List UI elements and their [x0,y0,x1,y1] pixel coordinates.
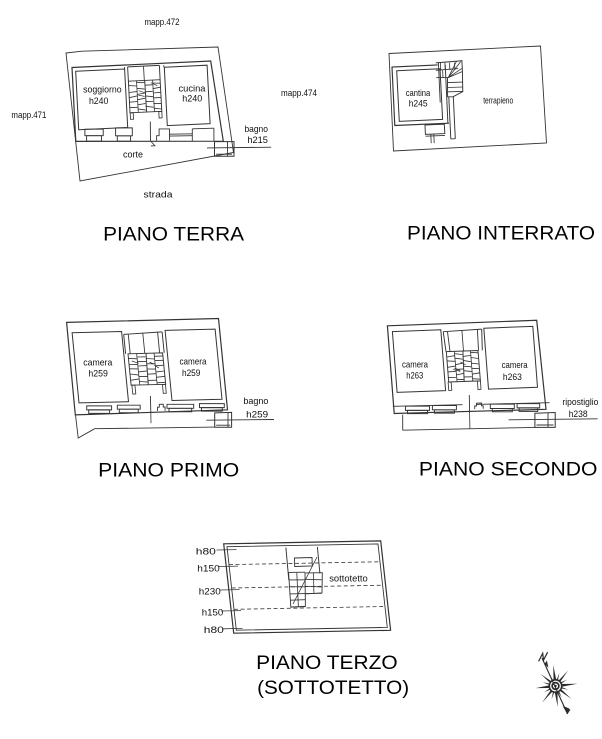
svg-text:camera: camera [502,360,529,371]
svg-text:ripostiglio: ripostiglio [562,397,598,408]
svg-text:PIANO SECONDO: PIANO SECONDO [419,459,598,481]
svg-text:h240: h240 [182,94,202,105]
svg-text:camera: camera [402,359,429,370]
svg-text:h259: h259 [182,368,201,379]
svg-text:soggiorno: soggiorno [83,85,122,96]
svg-text:mapp.471: mapp.471 [11,110,46,121]
svg-text:h259: h259 [88,368,108,379]
svg-text:camera: camera [83,357,113,368]
svg-text:PIANO INTERRATO: PIANO INTERRATO [407,223,595,245]
svg-text:h80: h80 [196,546,216,557]
svg-text:h215: h215 [247,135,268,146]
svg-text:bagno: bagno [244,124,268,135]
svg-text:camera: camera [180,357,208,368]
svg-text:terrapieno: terrapieno [483,96,513,107]
svg-text:PIANO PRIMO: PIANO PRIMO [98,460,239,482]
svg-text:corte: corte [123,149,143,160]
svg-text:mapp.474: mapp.474 [281,88,317,99]
svg-text:mapp.472: mapp.472 [145,17,180,28]
svg-text:PIANO TERRA: PIANO TERRA [103,224,244,246]
svg-text:bagno: bagno [243,396,268,407]
svg-text:h263: h263 [503,372,522,383]
svg-text:h259: h259 [246,409,268,420]
svg-text:h80: h80 [204,625,224,636]
svg-text:h263: h263 [406,371,423,382]
svg-text:strada: strada [144,190,174,201]
svg-text:h150: h150 [202,607,224,618]
svg-text:(SOTTOTETTO): (SOTTOTETTO) [257,677,409,699]
svg-text:sottotetto: sottotetto [329,573,368,584]
svg-text:h245: h245 [409,99,428,110]
svg-text:h150: h150 [197,564,220,575]
svg-text:h238: h238 [569,409,588,420]
svg-text:h240: h240 [89,96,109,107]
svg-text:PIANO TERZO: PIANO TERZO [256,652,398,674]
svg-text:cantina: cantina [406,88,431,99]
svg-text:h230: h230 [199,586,221,597]
